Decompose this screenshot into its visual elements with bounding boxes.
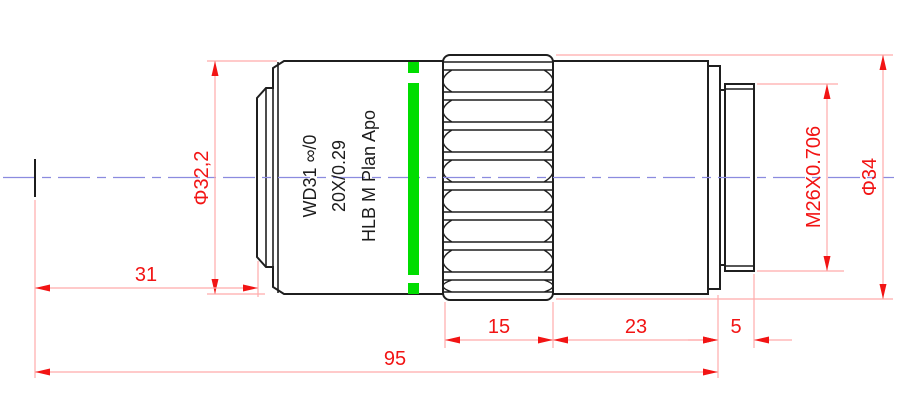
dim-label-knurl-length: 15 (488, 316, 510, 338)
objective-technical-drawing: HLB M Plan Apo 20X/0.29 WD31 ∞/0 Φ32,2 3… (0, 0, 900, 400)
dim-label-front-diameter: Φ32,2 (191, 151, 213, 206)
dim-label-thread-length: 5 (730, 316, 741, 338)
arrow-up-icon (880, 55, 887, 70)
engraving-model: HLB M Plan Apo (359, 110, 379, 242)
dim-rear-body-length: 23 (553, 316, 718, 344)
dim-label-mount-thread: M26X0.706 (803, 126, 825, 228)
dim-label-overall-length: 95 (384, 348, 406, 370)
dim-front-distance: 31 (35, 264, 258, 292)
arrow-right-icon (243, 285, 258, 292)
arrow-down-icon (212, 279, 219, 294)
arrow-left-icon (553, 337, 568, 344)
arrow-left-icon (35, 285, 50, 292)
arrow-left-icon (754, 337, 769, 344)
arrow-down-icon (824, 256, 831, 271)
dim-thread-length: 5 (688, 316, 792, 344)
arrow-up-icon (212, 61, 219, 76)
dim-knurl-length: 15 (445, 316, 718, 344)
magnification-color-band (408, 62, 419, 294)
dim-label-rear-body-length: 23 (625, 316, 647, 338)
band-segment-top (408, 62, 419, 73)
drawing-canvas: HLB M Plan Apo 20X/0.29 WD31 ∞/0 Φ32,2 3… (0, 0, 900, 400)
arrow-right-icon (703, 337, 718, 344)
arrow-up-icon (824, 84, 831, 99)
dim-label-front-distance: 31 (135, 264, 157, 286)
arrow-right-icon (538, 337, 553, 344)
arrow-right-icon (703, 369, 718, 376)
arrow-left-icon (35, 369, 50, 376)
engraving-magnification: 20X/0.29 (329, 140, 349, 212)
engraving-working-distance: WD31 ∞/0 (300, 135, 320, 218)
band-segment-main (408, 83, 419, 275)
dim-overall-length: 95 (35, 348, 718, 376)
arrow-down-icon (880, 284, 887, 299)
band-segment-bottom (408, 283, 419, 294)
arrow-left-icon (445, 337, 460, 344)
dim-label-outer-diameter: Φ34 (859, 158, 881, 196)
